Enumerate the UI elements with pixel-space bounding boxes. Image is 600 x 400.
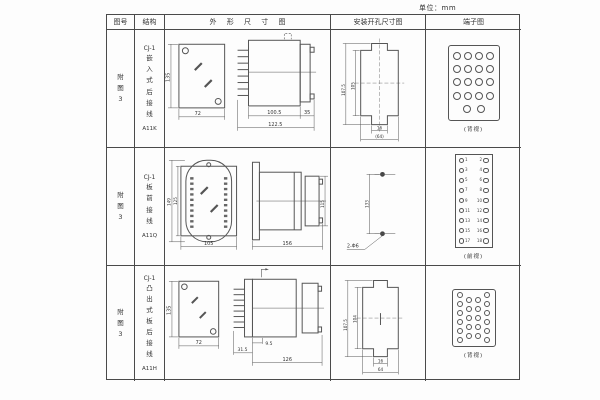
terminal-right-column: 24681012141618 [477,158,489,244]
model-label: CJ-1 [144,174,156,181]
dim-side-len: 156 [283,240,292,246]
dim-body-len: 100.5 [267,109,281,115]
figure-no-a11h: 附图3 [107,266,135,381]
structure-a11q: CJ-1 板前接线 A11Q [135,148,165,266]
dim-oval-height: 149 [166,197,171,205]
header-terminal-col: 端子图 [426,15,521,30]
figure-no-a11k: 附图3 [107,30,135,148]
dim-overall-width: 64 [378,367,384,372]
dim-inner-height: 104 [353,314,358,322]
dim-hole-spacing: 133 [364,199,369,207]
terminal-caption: (背视) [464,125,483,133]
terminal-box [452,289,496,347]
structure-a11h: CJ-1 凸出式板后接线 A11H [135,266,165,381]
structure-name: 嵌入式后接线 [146,53,154,119]
hole-spec-label: 2-Φ6 [347,243,359,249]
dim-inner-height: 105 [351,81,356,89]
header-mounting-col: 安装开孔尺寸图 [331,15,426,30]
terminal-diagram-a11q: 1357911131517 24681012141618 (前视) [426,148,521,266]
mounting-svg-a11q: 133 2-Φ6 [331,148,425,266]
terminal-box: 1357911131517 24681012141618 [455,154,493,248]
structure-code: A11K [142,126,156,132]
dim-front-height: 135 [165,72,171,81]
outline-svg-a11h: 135 72 [165,266,330,381]
header-figure-col: 图号 [107,15,135,30]
dim-total-len: 122.5 [268,121,282,127]
mounting-drawing-a11h: 107.5 104 16 64 [331,266,426,381]
structure-code: A11H [142,366,157,372]
mounting-drawing-a11k: 107.5 105 16 (64) [331,30,426,148]
terminal-caption: (前视) [464,252,483,260]
dim-overall-width: (64) [375,134,384,139]
structure-name: 凸出式板后接线 [146,283,154,360]
terminal-diagram-a11h: (背视) [426,266,521,381]
mounting-svg-a11k: 107.5 105 16 (64) [331,30,425,148]
unit-label: 单位：mm [419,3,456,13]
figure-no-a11q: 附图3 [107,148,135,266]
structure-a11k: CJ-1 嵌入式后接线 A11K [135,30,165,148]
outline-drawing-a11h: 135 72 [165,266,331,381]
terminal-diagram-a11k: (背视) [426,30,521,148]
header-structure-col: 结构 [135,15,165,30]
structure-code: A11Q [142,233,157,239]
outline-drawing-a11k: 135 72 100.5 122.5 [165,30,331,148]
spec-table: 图号 结构 外 形 尺 寸 图 安装开孔尺寸图 端子图 附图3 CJ-1 嵌入式… [106,14,520,380]
figure-no-text: 附图3 [117,72,125,105]
outline-drawing-a11q: 149 125 105 156 115 [165,148,331,266]
dim-side-height: 115 [320,199,325,207]
terminal-box [448,45,500,121]
dim-outer-height: 107.5 [341,83,346,95]
structure-name: 板前接线 [146,182,154,226]
model-label: CJ-1 [144,275,156,282]
terminal-left-column: 1357911131517 [459,158,471,244]
figure-no-text: 附图3 [117,307,125,340]
mounting-svg-a11h: 107.5 104 16 64 [331,266,425,381]
dim-case-height: 125 [173,196,178,204]
dim-flange-len: 35 [304,109,310,115]
dim-front-width: 72 [196,339,202,345]
terminal-caption: (背视) [464,351,483,359]
header-outline-col: 外 形 尺 寸 图 [165,15,331,30]
dim-front-height: 135 [166,305,172,314]
figure-no-text: 附图3 [117,190,125,223]
dim-front-width: 105 [204,240,213,246]
outline-svg-a11q: 149 125 105 156 115 [165,148,330,266]
mounting-drawing-a11q: 133 2-Φ6 [331,148,426,266]
dim-slot-width: 16 [377,125,383,130]
dim-offset: 9.5 [265,340,272,346]
dim-body-len: 126 [283,356,292,362]
dim-pin-len: 31.5 [238,346,248,352]
outline-svg-a11k: 135 72 100.5 122.5 [165,30,330,148]
dim-slot-width: 16 [378,358,384,363]
dim-outer-height: 107.5 [343,318,348,330]
model-label: CJ-1 [144,45,156,52]
dim-front-width: 72 [195,110,201,116]
